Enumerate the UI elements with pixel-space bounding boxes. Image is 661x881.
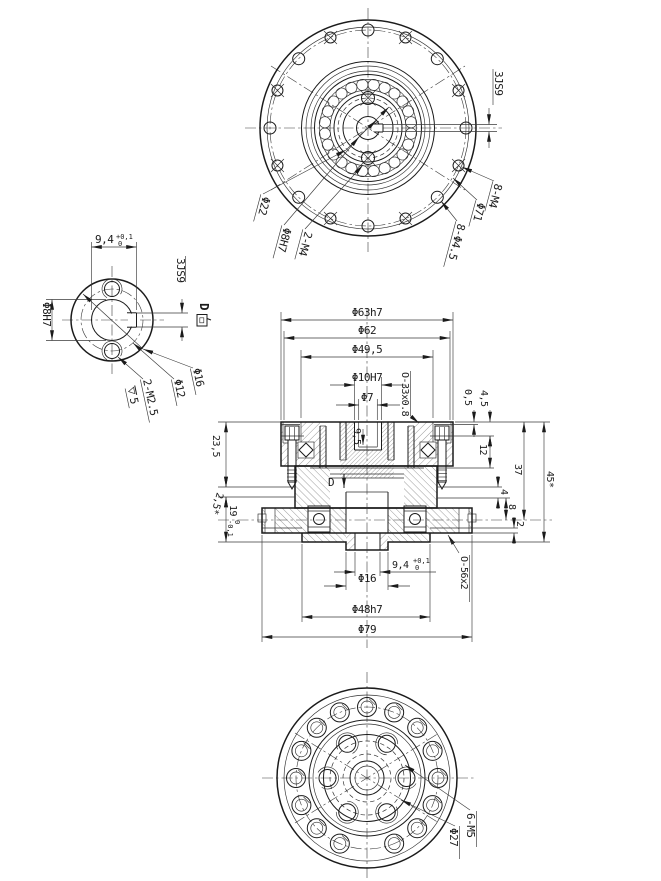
- callout-label-phi27: Φ27: [447, 828, 460, 846]
- bearing-right: [404, 506, 426, 532]
- dim-label-3js9: 3JS9: [492, 71, 505, 96]
- dim-label-key-9-4: 9,4: [392, 560, 409, 571]
- dim-label-phi10h7: Φ10H7: [352, 371, 383, 384]
- top-view: 3JS9 Φ22 Φ8H7 2-M4 8-M4 Φ71: [245, 8, 505, 270]
- dim-3js9: 3JS9: [137, 256, 188, 341]
- roller-right: [420, 442, 436, 458]
- callout-label-phi12: Φ12: [171, 378, 188, 399]
- bearing-left: [308, 506, 330, 532]
- hatch-boss-left: [302, 533, 346, 542]
- dim-9-4: 9,4 +0,1 0: [92, 233, 137, 310]
- dim-label-phi79: Φ79: [358, 623, 376, 636]
- callout-label-6m5: 6-M5: [464, 813, 477, 838]
- callout-label-8m4: 8-M4: [486, 182, 505, 210]
- dim-label-2: 2: [514, 521, 525, 527]
- hatch-mid-left: [295, 466, 330, 508]
- hatch-flexspline-right: [408, 426, 414, 468]
- oring-bottom-label: O-56x2: [458, 556, 469, 590]
- flange-hole-right: [459, 508, 476, 533]
- dim-label-phi8h7: Φ8H7: [40, 302, 53, 327]
- oring-top-label: O-33x0.8: [399, 372, 410, 417]
- dim-label-8: 8: [506, 504, 517, 510]
- callout-6m5: 6-M5: [405, 765, 477, 847]
- section-view: D Φ63h7 Φ62 Φ49,5 Φ10H7 Φ7 9,5 O-33x0.8 …: [208, 306, 555, 648]
- callout-phi12: Φ12: [133, 343, 189, 406]
- callout-8phi45: 8-Φ4.5: [441, 201, 468, 270]
- dim-label-phi62: Φ62: [358, 324, 376, 337]
- dim-label-phi63h7: Φ63h7: [352, 306, 383, 319]
- dim-label-37: 37: [512, 464, 523, 476]
- callout-2m25: 2-M2.5: [118, 357, 162, 423]
- dim-label-phi7: Φ7: [361, 391, 373, 404]
- callout-label-8phi45: 8-Φ4.5: [446, 222, 468, 261]
- dim-label-19-tol-lower: -0,1: [226, 520, 234, 537]
- depth-symbol-icon: [128, 386, 137, 397]
- dim-label-3js9: 3JS9: [174, 258, 187, 283]
- roller-left: [298, 442, 314, 458]
- dim-3js9: 3JS9: [489, 69, 505, 148]
- keyway: [127, 313, 137, 327]
- dim-label-9-4: 9,4: [95, 233, 114, 246]
- bottom-view: 6-M5 Φ27: [262, 672, 477, 880]
- view-d-letter: D: [328, 476, 334, 489]
- callout-label-phi16: Φ16: [190, 367, 207, 388]
- callout-phi8h7: Φ8H7: [273, 121, 377, 262]
- d-view-title: D: [197, 303, 212, 326]
- callout-label-depth: 5: [127, 396, 141, 405]
- dim-key-tol-lower: 0: [415, 564, 419, 572]
- drawing-sheet: 3JS9 Φ22 Φ8H7 2-M4 8-M4 Φ71: [0, 0, 661, 881]
- dim-label-45: 45*: [544, 471, 555, 488]
- flange-hole-left: [258, 508, 275, 533]
- dim-label-phi49-5: Φ49,5: [352, 343, 383, 356]
- dim-tol-lower: 0: [118, 240, 122, 248]
- dim-label-4-5: 4,5: [478, 390, 489, 407]
- callout-label-2m4: 2-M4: [296, 230, 315, 258]
- callout-depth: 5: [124, 385, 141, 408]
- callout-label-phi8h7: Φ8H7: [275, 226, 294, 253]
- hatch-flexspline-left: [320, 426, 326, 468]
- callout-oring-top: O-33x0.8: [399, 371, 419, 423]
- dim-label-19: 19: [227, 505, 238, 517]
- keyway: [372, 124, 383, 132]
- dim-label-2-5: 2,5*: [208, 491, 224, 516]
- dim-label-4: 4: [498, 489, 509, 495]
- dim-label-12: 12: [477, 444, 488, 456]
- dim-label-phi16: Φ16: [358, 572, 376, 585]
- callout-oring-bottom: O-56x2: [448, 535, 470, 602]
- dim-label-23-5: 23,5: [210, 435, 221, 458]
- hatch-boss-right: [388, 533, 430, 542]
- xiang-character: [197, 315, 211, 327]
- engineering-drawing: 3JS9 Φ22 Φ8H7 2-M4 8-M4 Φ71: [0, 0, 661, 881]
- dim-label-9-5: 9,5: [351, 428, 362, 445]
- d-view-title-letter: D: [197, 303, 212, 311]
- hatch-mid-right: [404, 466, 437, 508]
- output-bore: [355, 533, 380, 550]
- dim-label-0-5: 0,5: [462, 389, 473, 406]
- callout-label-2m25: 2-M2.5: [140, 378, 160, 417]
- d-view: 9,4 +0,1 0 3JS9 Φ8H7 D Φ16: [40, 233, 212, 423]
- dim-label-phi48h7: Φ48h7: [352, 603, 383, 616]
